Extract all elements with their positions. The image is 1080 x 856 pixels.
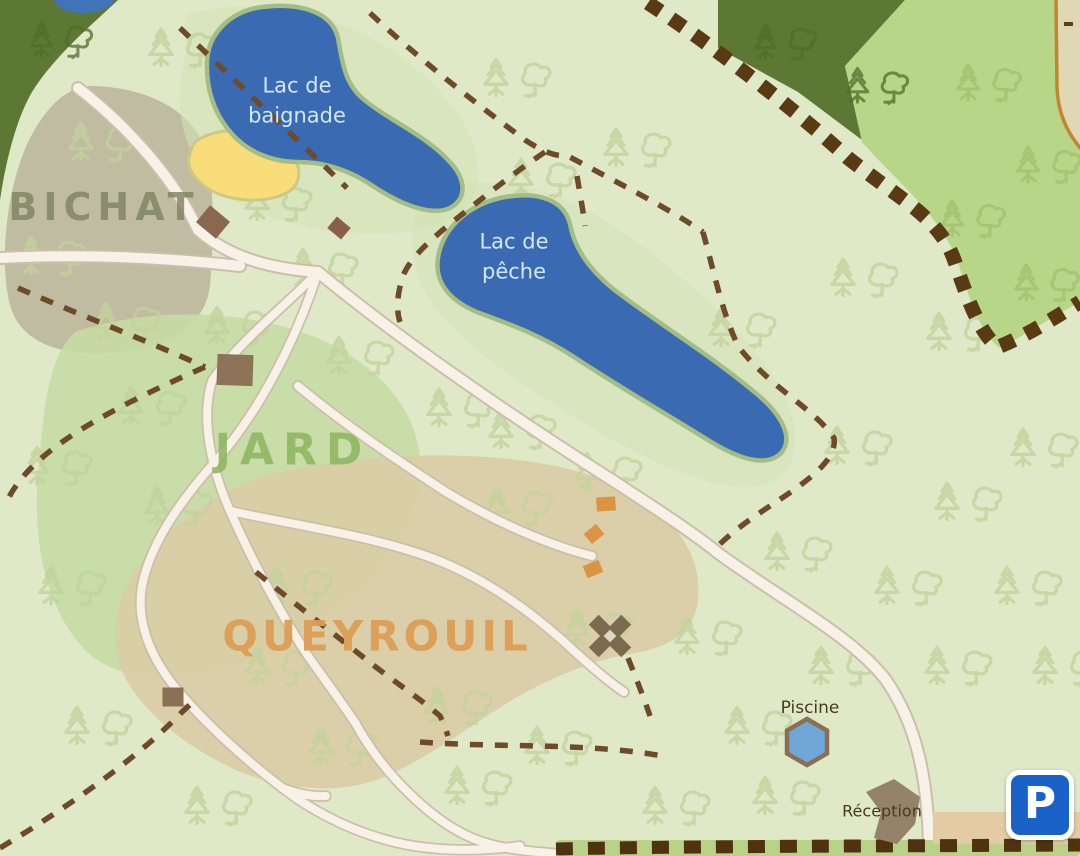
- parking-sign[interactable]: P: [1006, 770, 1074, 840]
- building-queyrouil-west: [163, 688, 184, 707]
- parking-letter: P: [1024, 782, 1056, 829]
- map-canvas: [0, 0, 1080, 856]
- campsite-map: BICHAT JARD QUEYROUIL Lac de baignade La…: [0, 0, 1080, 856]
- cabin-1: [596, 496, 616, 511]
- parking-icon: P: [1011, 775, 1069, 835]
- cutoff-road-label-fragment: [1064, 22, 1073, 26]
- swimming-pool-shape: [787, 719, 827, 765]
- building-jard: [216, 354, 253, 386]
